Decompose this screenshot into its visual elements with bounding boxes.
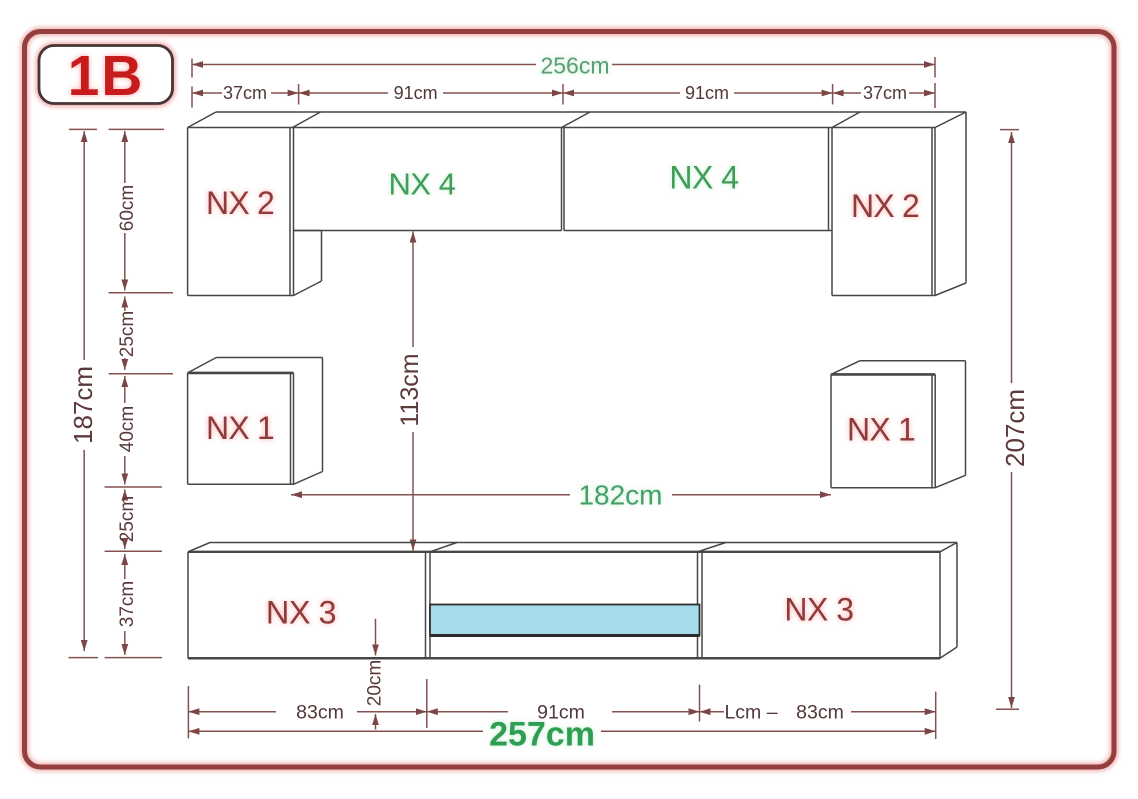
svg-text:182cm: 182cm [578, 480, 662, 511]
svg-text:83cm: 83cm [296, 701, 344, 723]
svg-text:NX 1: NX 1 [847, 412, 915, 448]
svg-text:NX 3: NX 3 [784, 592, 853, 628]
svg-text:NX 2: NX 2 [851, 188, 919, 224]
svg-text:83cm: 83cm [796, 701, 844, 723]
svg-text:NX 4: NX 4 [389, 167, 456, 202]
svg-text:NX 3: NX 3 [266, 595, 336, 631]
svg-text:Lcm –: Lcm – [724, 701, 777, 723]
svg-text:256cm: 256cm [540, 53, 609, 79]
svg-text:60cm: 60cm [117, 185, 138, 231]
svg-text:37cm: 37cm [223, 83, 267, 103]
svg-text:NX 1: NX 1 [206, 410, 274, 446]
svg-text:207cm: 207cm [1000, 389, 1030, 467]
svg-text:25cm: 25cm [117, 311, 138, 357]
svg-text:1B: 1B [68, 44, 145, 108]
svg-text:91cm: 91cm [394, 83, 438, 103]
svg-text:257cm: 257cm [489, 716, 595, 754]
svg-text:37cm: 37cm [863, 83, 907, 103]
svg-text:NX 2: NX 2 [206, 185, 274, 221]
svg-text:187cm: 187cm [68, 366, 98, 444]
svg-text:20cm: 20cm [365, 660, 386, 706]
svg-text:40cm: 40cm [117, 406, 138, 452]
svg-text:25cm: 25cm [117, 496, 138, 542]
svg-text:91cm: 91cm [685, 83, 729, 103]
svg-text:113cm: 113cm [396, 353, 424, 426]
svg-text:37cm: 37cm [117, 581, 138, 627]
svg-text:NX 4: NX 4 [669, 160, 738, 196]
